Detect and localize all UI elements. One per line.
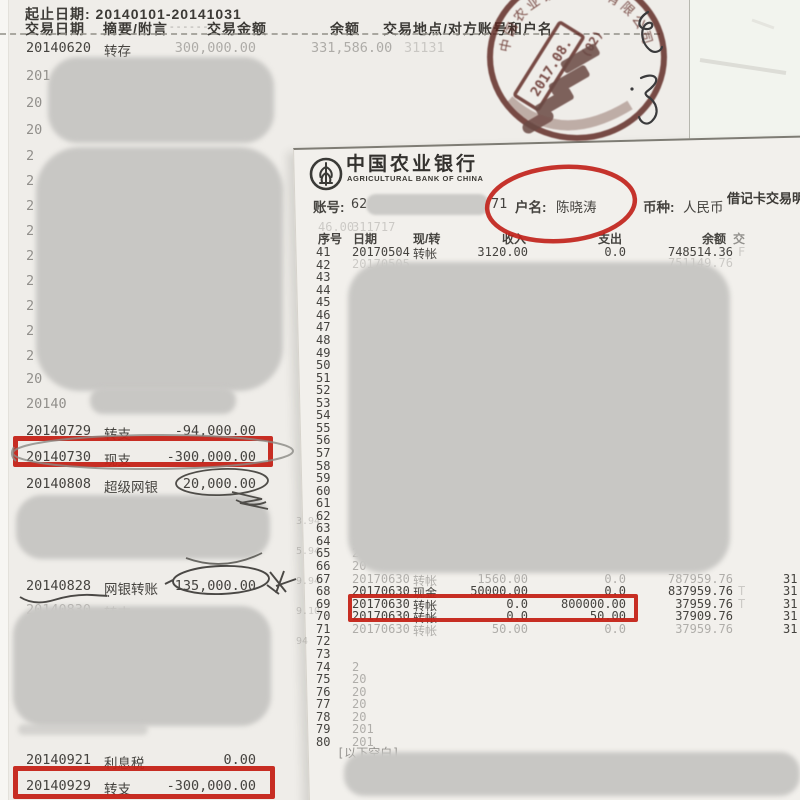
redaction-blob — [348, 262, 730, 573]
redaction-layer-abc — [0, 0, 800, 800]
redaction-blob — [344, 752, 800, 796]
scanned-bank-statements: 起止日期: 20140101-20141031 交易日期 摘要/附言 - - -… — [0, 0, 800, 800]
